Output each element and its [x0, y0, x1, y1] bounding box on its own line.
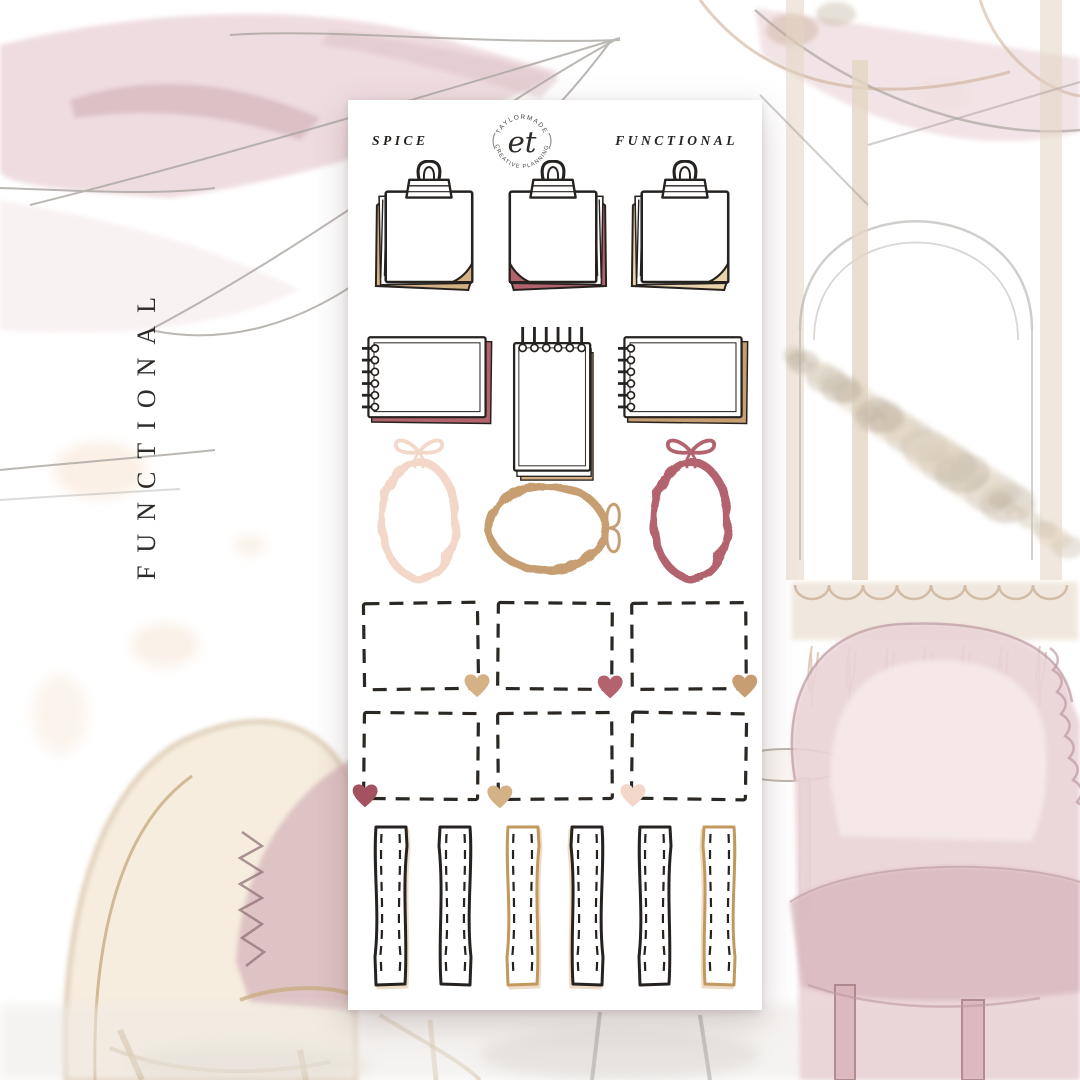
binder-clip-icon [662, 161, 707, 197]
heart-icon [351, 783, 378, 808]
stitched-strip-sticker [501, 822, 543, 990]
frame-stickers-row [348, 434, 762, 584]
logo-monogram: et [507, 125, 536, 159]
side-label: FUNCTIONAL [132, 157, 172, 707]
armchair [790, 624, 1080, 1080]
dashed-journaling-box-sticker [361, 709, 482, 802]
dashed-box-stickers-row [348, 710, 762, 802]
dashed-journaling-box-sticker [360, 599, 481, 693]
sheet-type-label: FUNCTIONAL [615, 133, 738, 149]
stitched-strip-sticker [369, 822, 411, 990]
binder-clip-icon [406, 161, 451, 197]
collection-name: SPICE [372, 133, 429, 149]
dashed-journaling-box-sticker [495, 599, 616, 692]
binder-clip-icon [530, 161, 575, 197]
stitched-strip-sticker [567, 822, 609, 990]
heart-icon [463, 673, 490, 698]
heart-icon [731, 674, 758, 699]
sticker-sheet: SPICE TAYLORMADE CREATIVE PLANNING e [348, 100, 762, 1010]
spiral-notebook-sticker [361, 332, 493, 428]
heart-icon [486, 784, 513, 809]
dashed-journaling-box-sticker [495, 709, 616, 802]
heart-icon [597, 674, 624, 699]
stitched-strip-sticker [435, 822, 477, 990]
stitched-strip-sticker [699, 822, 741, 990]
clipboard-note-sticker [498, 160, 612, 298]
spiral-notebook-sticker [617, 332, 749, 428]
heart-icon [619, 783, 646, 808]
stitched-strip-sticker [633, 822, 675, 990]
scalloped-frame-sticker [373, 434, 465, 584]
strip-stickers-row [348, 822, 762, 990]
bow-icon [607, 504, 619, 552]
dashed-journaling-box-sticker [628, 709, 749, 803]
dashed-box-stickers-row [348, 600, 762, 692]
clipboard-note-sticker [370, 160, 484, 298]
clipboard-note-sticker [626, 160, 740, 298]
dashed-journaling-box-sticker [629, 600, 750, 693]
scalloped-frame-sticker [481, 474, 629, 580]
scalloped-frame-sticker [645, 434, 737, 584]
product-image: FUNCTIONAL SPICE TAYLORMADE CREATIVE P [0, 0, 1080, 1080]
clipboard-stickers-row [348, 160, 762, 298]
